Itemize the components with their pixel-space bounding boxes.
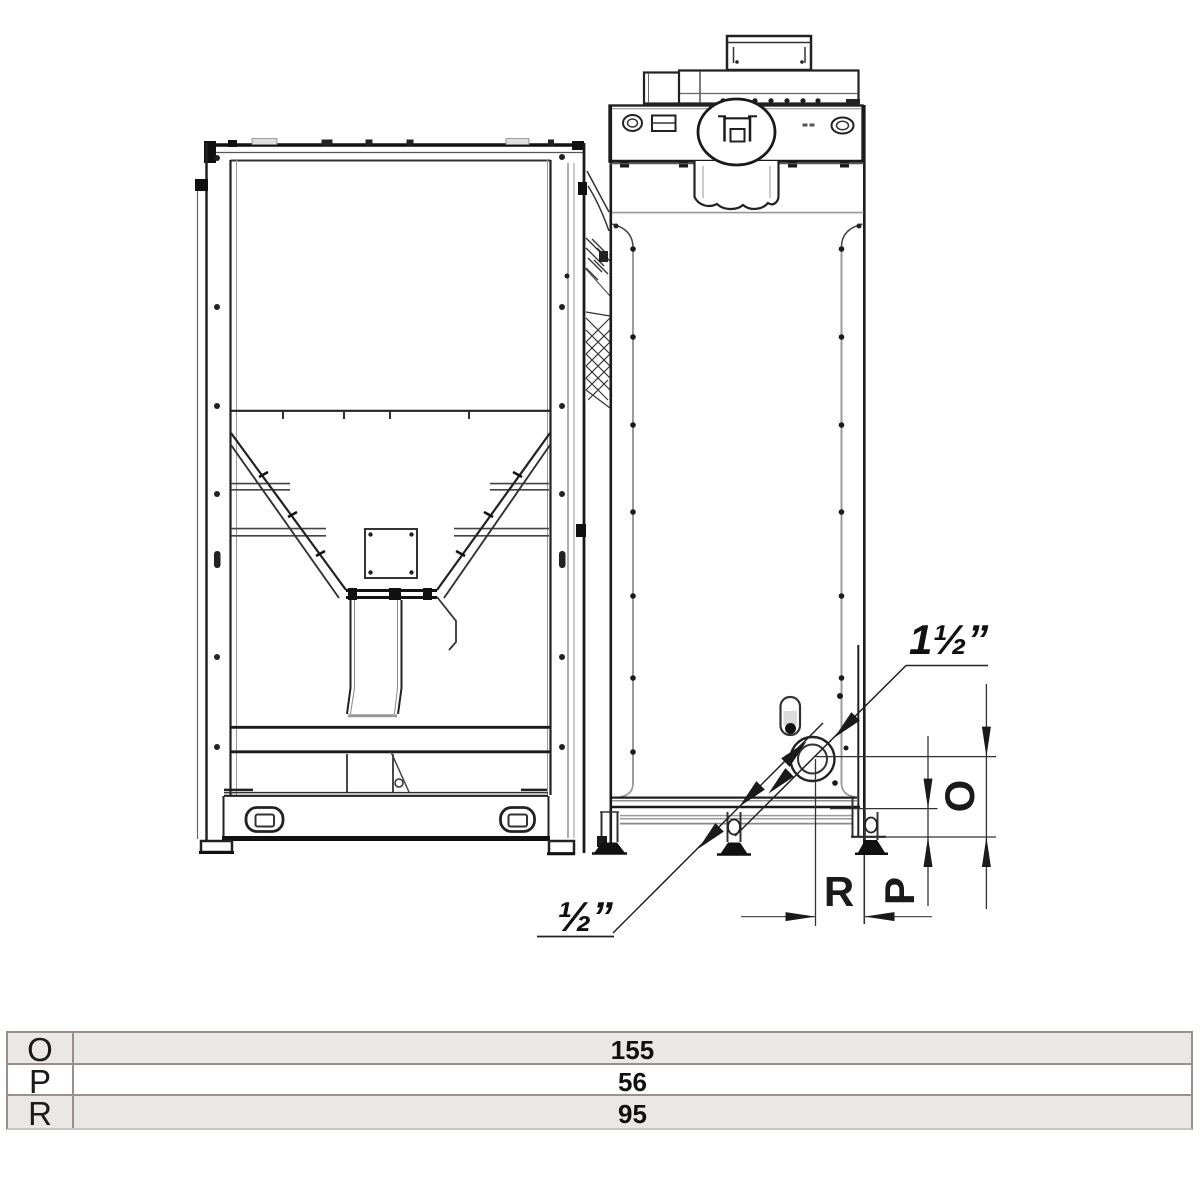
svg-text:R: R xyxy=(824,868,854,915)
svg-text:P: P xyxy=(876,877,923,905)
svg-text:1½”: 1½” xyxy=(909,616,988,663)
svg-text:½”: ½” xyxy=(557,893,613,940)
svg-text:O: O xyxy=(936,780,983,813)
